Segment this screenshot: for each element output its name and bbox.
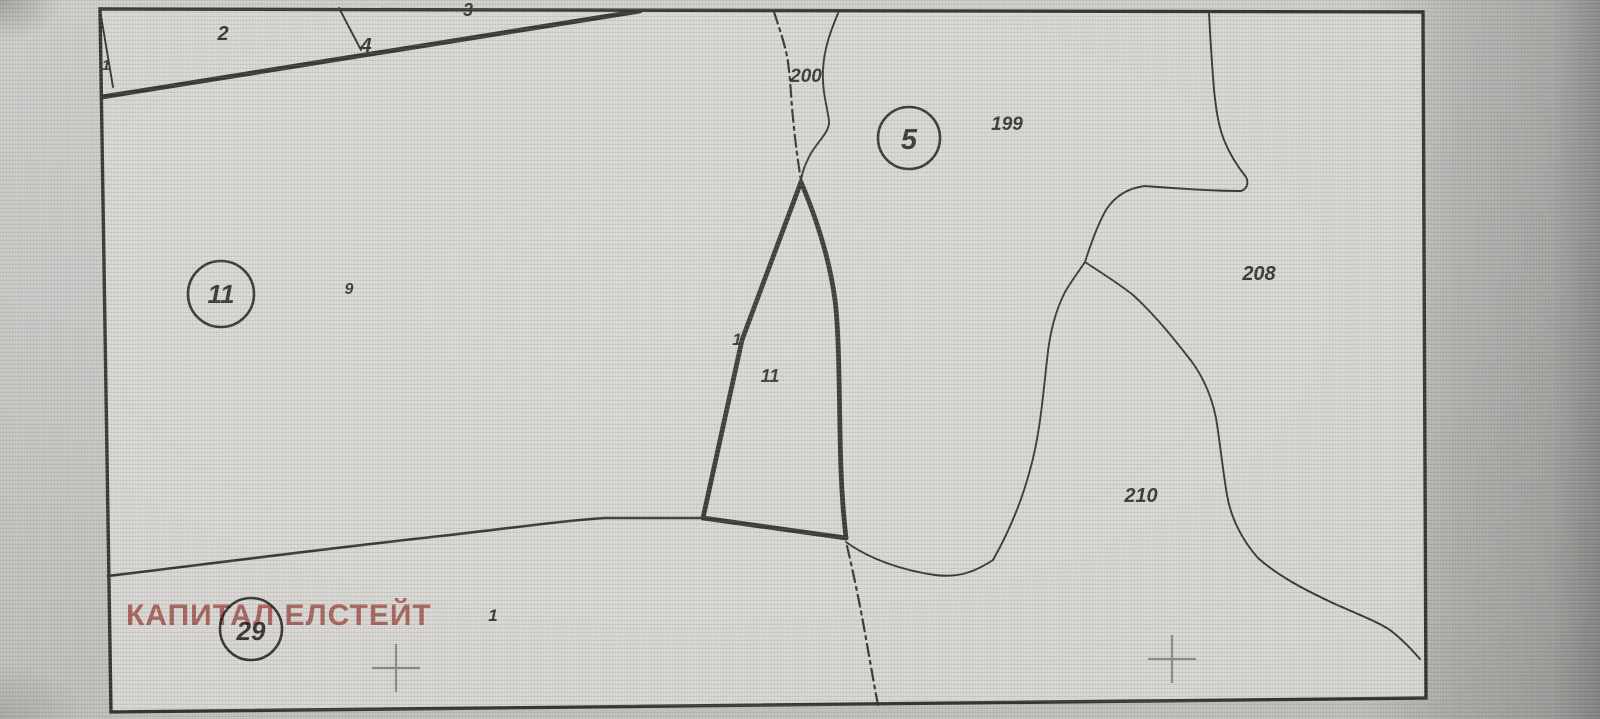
parcel-label-mid-11: 11 xyxy=(761,366,780,386)
watermark-text: КАПИТАЛ ЕЛСТЕЙТ xyxy=(126,599,432,633)
parcel-label-199: 199 xyxy=(991,114,1023,135)
cadastral-map-photo: 1 2 4 3 200 199 9 1 11 208 210 1 11 5 29… xyxy=(0,0,1600,719)
parcel-label-210: 210 xyxy=(1123,485,1157,507)
parcel-label-mid-1: 1 xyxy=(732,330,741,349)
parcel-label-topleft-1: 1 xyxy=(102,57,110,74)
parcel-label-2: 2 xyxy=(216,23,228,45)
circled-number-11-text: 11 xyxy=(208,279,235,309)
circled-number-5-text: 5 xyxy=(901,124,918,156)
parcel-label-200: 200 xyxy=(789,66,822,87)
parcel-label-4: 4 xyxy=(359,35,371,57)
parcel-label-9: 9 xyxy=(345,281,354,298)
parcel-label-bottom-1: 1 xyxy=(488,606,497,625)
parcel-label-208: 208 xyxy=(1241,263,1276,285)
parcel-label-3: 3 xyxy=(463,0,473,20)
